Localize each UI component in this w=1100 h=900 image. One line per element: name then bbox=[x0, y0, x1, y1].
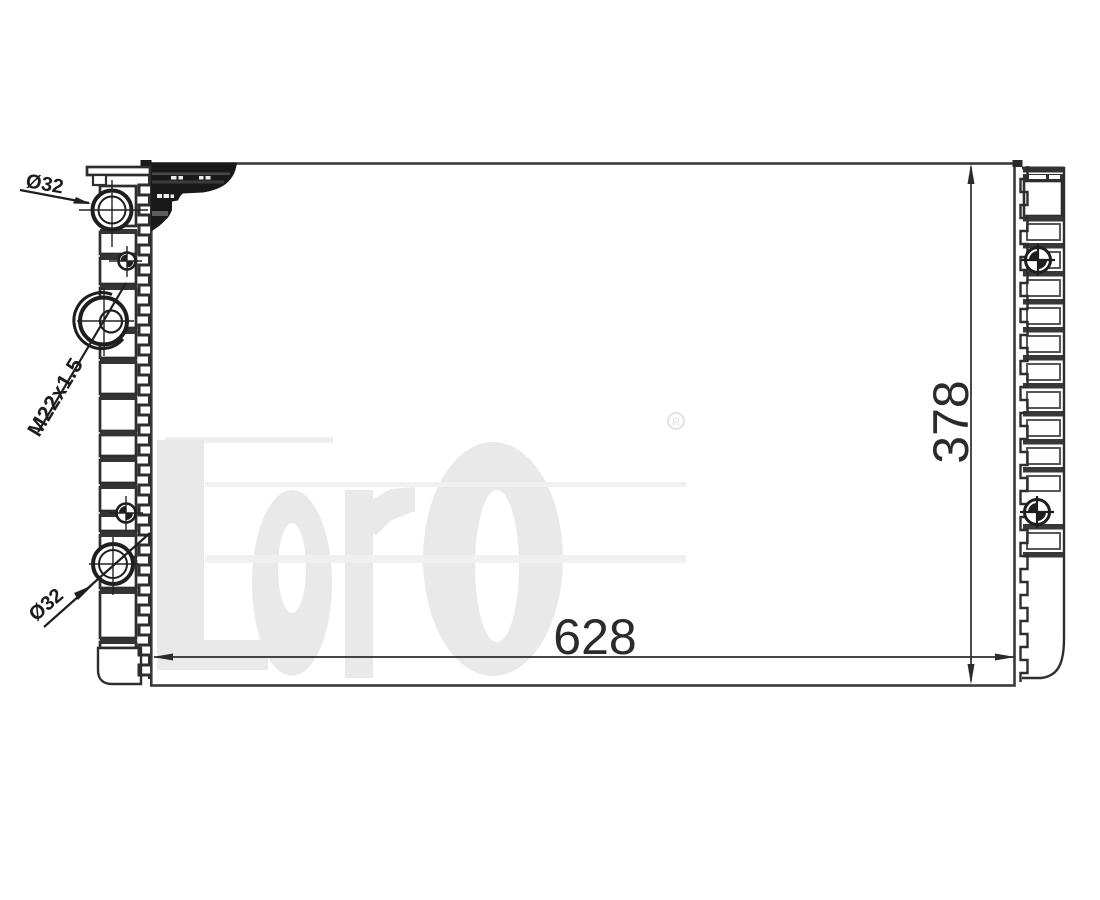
svg-text:378: 378 bbox=[923, 380, 979, 463]
svg-text:R: R bbox=[672, 417, 680, 429]
svg-text:628: 628 bbox=[553, 609, 636, 665]
